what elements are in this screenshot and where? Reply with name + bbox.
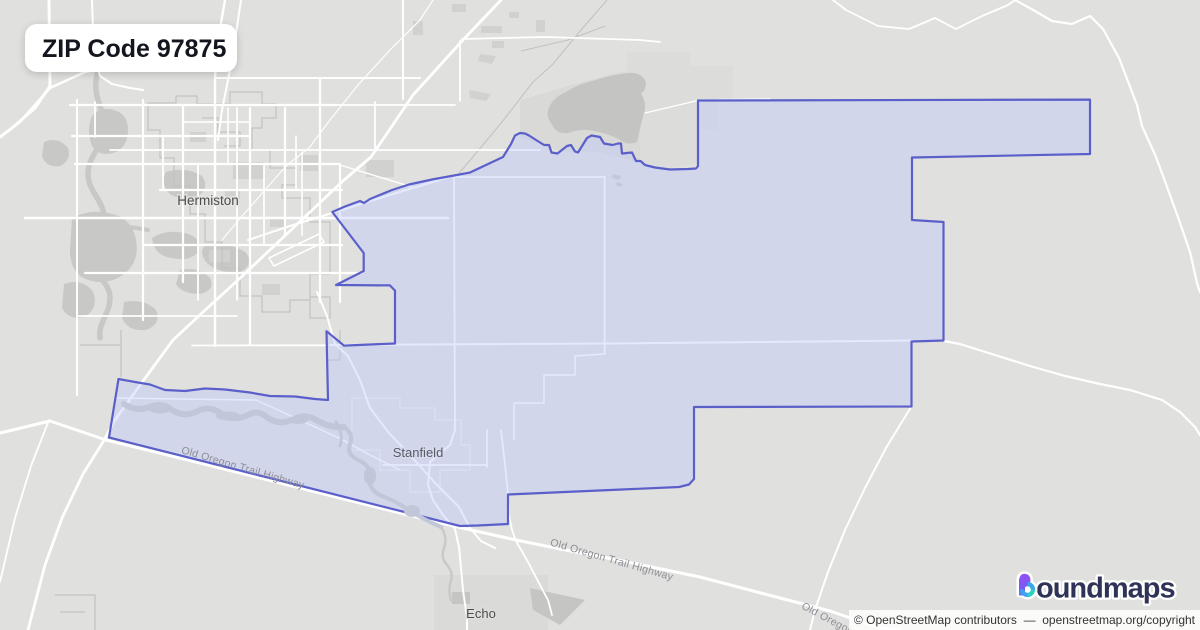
svg-text:Hermiston: Hermiston <box>177 193 239 208</box>
svg-text:Stanfield: Stanfield <box>393 445 444 460</box>
svg-text:Echo: Echo <box>466 606 496 621</box>
svg-text:oundmaps: oundmaps <box>1036 573 1175 605</box>
